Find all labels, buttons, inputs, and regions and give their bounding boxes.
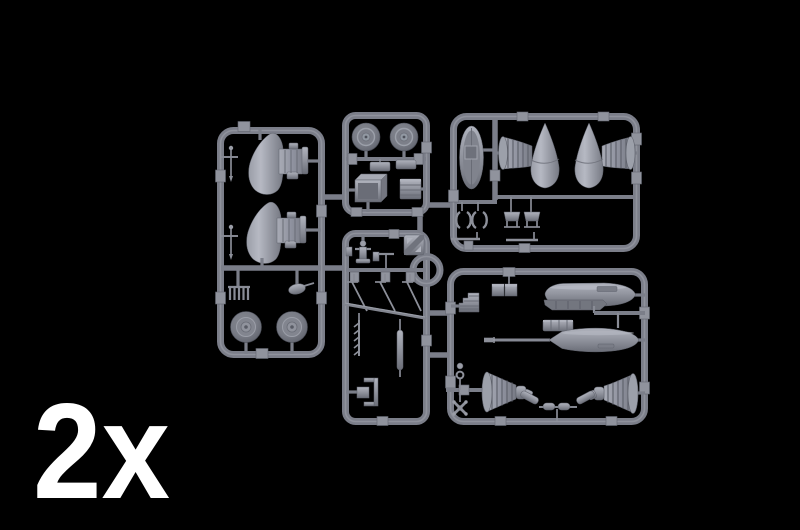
part-equipment-box: [543, 320, 573, 331]
part-placard: [404, 235, 424, 255]
part-tank-pylon: [544, 300, 607, 310]
part-plate-2: [396, 160, 416, 169]
sprue-photo: 2x: [0, 0, 800, 530]
photo-canvas: 2x: [0, 0, 800, 530]
quantity-label: 2x: [33, 375, 170, 527]
